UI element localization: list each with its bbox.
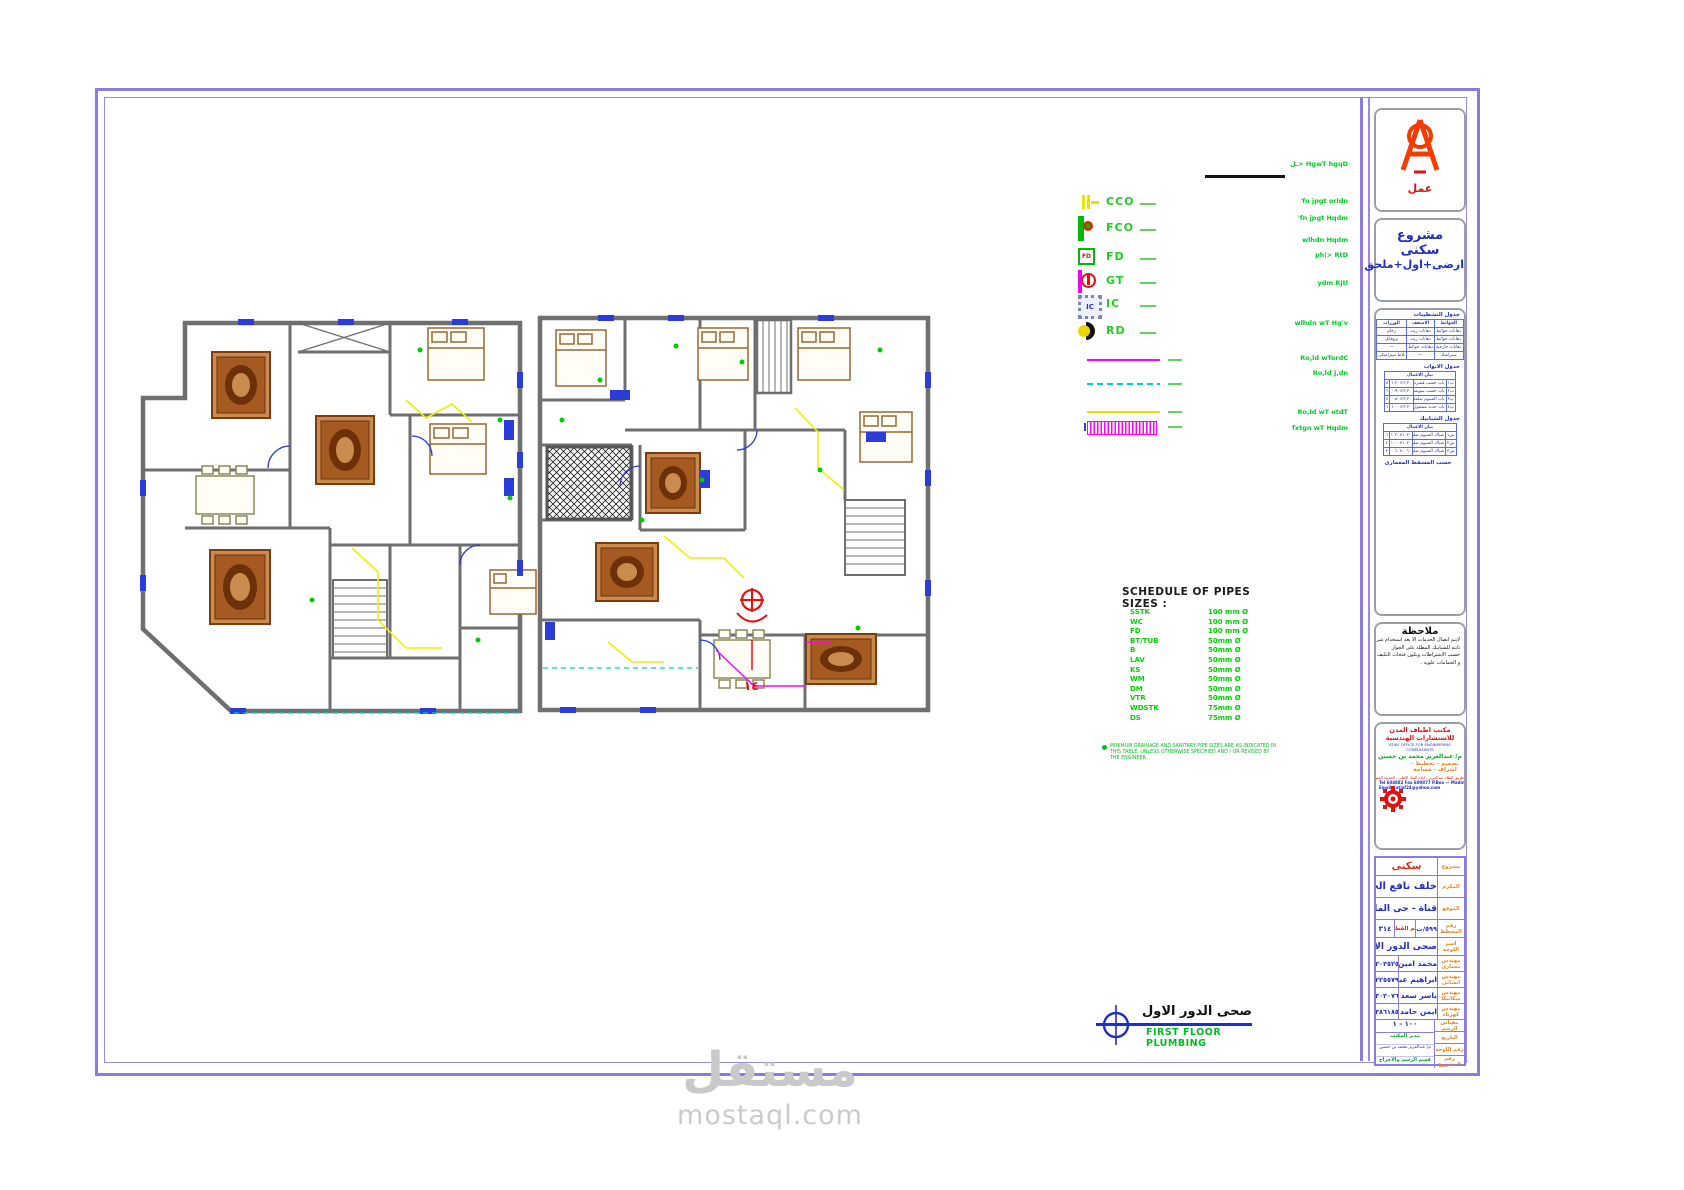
info-value: صحى الدور الاول bbox=[1376, 942, 1437, 952]
line-sample-yellow bbox=[1087, 411, 1160, 413]
watermark-wordmark: مستقل bbox=[660, 1042, 880, 1098]
table-row: ش١شباك المنيوم ضلفتين منزلق١.٢٠×١.٢٠٦ bbox=[1384, 432, 1456, 440]
info-label: الموقع bbox=[1437, 898, 1464, 919]
legend-label: RD bbox=[1106, 324, 1126, 337]
info-label: رقم المشروع bbox=[1435, 1056, 1464, 1067]
engineer-license: ٣٨٦١٨٥ bbox=[1376, 1004, 1399, 1019]
info-label: التاريخ bbox=[1435, 1032, 1464, 1043]
finishes-body: ١بلاط رخامدهانات حوائطدهانات زيترخام٢سير… bbox=[1377, 328, 1467, 360]
table-row: ٢سيراميكدهانات حوائطدهانات زيتبروفايل bbox=[1377, 336, 1467, 344]
pipe-row: WDSTK75mm Ø bbox=[1130, 704, 1260, 714]
legend-label: GT bbox=[1106, 274, 1124, 287]
pipe-schedule-rows: SSTK100 mm ØWC100 mm ØFD100 mm ØBT/TUB50… bbox=[1130, 608, 1260, 723]
info-row-project: مشروع سكنى bbox=[1376, 858, 1464, 876]
note-line: حسب الاشتراطات ويكون فتحات التكيف bbox=[1376, 652, 1464, 660]
legend-tick bbox=[1168, 359, 1182, 361]
legend-label: FCO bbox=[1106, 221, 1134, 234]
info-row-owner: المكرم خلف نافع الحربى bbox=[1376, 876, 1464, 898]
note-title: ملاحظة bbox=[1376, 626, 1464, 637]
info-row-plot: رقم المخطط ٥٩٩/ت /١٤١٣ رقم القطعة ٣١٤ bbox=[1376, 920, 1464, 938]
project-title-line: سكنى bbox=[1376, 243, 1464, 258]
office-engineer: م/ عبدالعزيز محمد بن حسين bbox=[1376, 753, 1464, 760]
info-row-location: الموقع قناة - حى الملك فهد bbox=[1376, 898, 1464, 920]
pipe-schedule-note: MINIMUM DRAINAGE AND SANITARY PIPE SIZES… bbox=[1110, 744, 1280, 762]
legend-annotation: ydm Rjtl bbox=[1318, 279, 1349, 287]
legend-annotation: Ro,ld J,dn bbox=[1313, 369, 1348, 377]
info-label: رقم المخطط bbox=[1437, 920, 1464, 937]
info-label: مشروع bbox=[1437, 858, 1464, 875]
legend-row-ic: IC IC bbox=[1078, 295, 1188, 317]
info-value: خلف نافع الحربى bbox=[1376, 881, 1437, 892]
note-box: ملاحظة لايتم ايصال الخدمات الا بعد استخد… bbox=[1374, 622, 1466, 716]
finishes-head: مالارضياتالحوائطالاسقفالوزرات bbox=[1377, 320, 1467, 328]
plot-sub-value: ٣١٤ bbox=[1376, 925, 1394, 933]
legend-tick bbox=[1140, 258, 1156, 260]
engineer-name: محمد امين الوجيه bbox=[1399, 959, 1437, 968]
plot-sub-label: رقم القطعة bbox=[1394, 920, 1416, 937]
pipe-schedule-title: SCHEDULE OF PIPES SIZES : bbox=[1122, 586, 1282, 610]
legend-annotation: ph|> RtD bbox=[1315, 251, 1348, 259]
legend-annotation: 'fn jpgt Hqdm bbox=[1298, 214, 1348, 222]
watermark-domain: mostaql.com bbox=[660, 1100, 880, 1131]
pipe-row: DS75mm Ø bbox=[1130, 714, 1260, 724]
plan-title-english: FIRST FLOOR PLUMBING bbox=[1146, 1027, 1266, 1049]
info-label: رقم اللوحة bbox=[1435, 1044, 1464, 1055]
table-row: ش٢شباك المنيوم ضلفتين منزلق١.٢٠×١.٠٠٤ bbox=[1384, 440, 1456, 448]
manager-label: مدير المكتب bbox=[1376, 1033, 1434, 1045]
engineer-name: ايمن حامد العوفى bbox=[1399, 1007, 1437, 1016]
schedules-box: جدول التشطيبات مالارضياتالحوائطالاسقفالو… bbox=[1374, 308, 1466, 616]
info-label: مقياس الرسم bbox=[1435, 1020, 1464, 1031]
legend-tick bbox=[1168, 426, 1182, 428]
logo-word: عمل bbox=[1376, 182, 1464, 195]
scale-value: ١٠٠ - ١ bbox=[1376, 1020, 1434, 1033]
legend-annotation: Ro,ld wTordC bbox=[1300, 354, 1348, 362]
line-sample-cyan-dashed bbox=[1087, 383, 1160, 385]
windows-body: ش١شباك المنيوم ضلفتين منزلق١.٢٠×١.٢٠٦ش٢ش… bbox=[1384, 432, 1456, 456]
engineer-license: ٢٢٥٥٧٩ bbox=[1376, 972, 1399, 987]
logo-box: عمل bbox=[1374, 108, 1466, 212]
legend-row-fco: FCO bbox=[1078, 219, 1188, 241]
note-line: و الحمامات علوية . bbox=[1376, 660, 1464, 668]
legend-annotation: ـل> HgwT hgqD bbox=[1290, 160, 1348, 168]
plan-title-arabic: صحى الدور الاول bbox=[1130, 1004, 1252, 1019]
table-row: ب٢باب خشب سويسكى قشرة زان الدهان٢.٢٠×٠.٩… bbox=[1385, 388, 1456, 396]
grease-trap-gt-icon bbox=[1078, 270, 1082, 293]
line-sample-insulated bbox=[1087, 421, 1157, 435]
info-label: المكرم bbox=[1437, 876, 1464, 897]
table-row: ب١باب خشب قشرة ابيض الدهان زيت٢.٢٠×١.٢٠٨ bbox=[1385, 380, 1456, 388]
windows-table: بيان الاعمالش١شباك المنيوم ضلفتين منزلق١… bbox=[1383, 423, 1456, 456]
pipe-row: LAV50mm Ø bbox=[1130, 656, 1260, 666]
manager-name: م/ عبدالعزيز محمد بن حسين bbox=[1376, 1045, 1434, 1057]
windows-table-title: جدول الشبابيك bbox=[1376, 414, 1464, 422]
finishes-table: مالارضياتالحوائطالاسقفالوزرات١بلاط رخامد… bbox=[1376, 319, 1466, 360]
legend-annotation: wlhdn wT Hg'v bbox=[1295, 319, 1348, 327]
inspection-chamber-ic-icon: IC bbox=[1078, 295, 1102, 319]
legend-row-cco: CCO bbox=[1078, 193, 1188, 215]
table-row: ب٤باب حديد مشغول٢.٢٠×١.٠٠١ bbox=[1385, 404, 1456, 412]
office-name-english: ATIAF OFFICE FOR ENGINEERING CONSULTANTS bbox=[1376, 742, 1464, 752]
table-row: ب٣باب المنيوم ضلفة مع زجاج٢.٢٠×٠.٨٠٤ bbox=[1385, 396, 1456, 404]
info-row-sheet-name: اسم اللوحة صحى الدور الاول bbox=[1376, 938, 1464, 956]
cleanout-cco-icon bbox=[1082, 193, 1102, 211]
pipe-row: WM50mm Ø bbox=[1130, 675, 1260, 685]
plan-title-underline bbox=[1096, 1023, 1252, 1026]
table-row: ٣بلاط حجرىدهانات خارجيةدهانات حوائط— bbox=[1377, 344, 1467, 352]
table-row: ٤بلاط متداخلسيراميك—بلاط سيراميكى bbox=[1377, 352, 1467, 360]
windows-footer: حسب المسقط المعمارى bbox=[1376, 458, 1464, 466]
note-line: لايتم ايصال الخدمات الا بعد استخدام شرائ… bbox=[1376, 637, 1464, 645]
office-box: مكتب اطياف المدن للاستشارات الهندسية ATI… bbox=[1374, 722, 1466, 850]
engineer-license: ٣٠٢٠٧٦ bbox=[1376, 988, 1399, 1003]
info-label: مهندس انشائى bbox=[1437, 972, 1464, 987]
info-bottom-grid: مقياس الرسم التاريخ رقم اللوحة رقم المشر… bbox=[1376, 1020, 1464, 1068]
legend-annotation: wlhdn Hqdm bbox=[1302, 236, 1348, 244]
floor-drain-fd-icon: FD bbox=[1078, 248, 1095, 265]
project-title-line: مشروع bbox=[1376, 228, 1464, 243]
finishes-table-title: جدول التشطيبات bbox=[1376, 310, 1464, 318]
legend-row-rd: RD bbox=[1078, 322, 1188, 344]
engineer-name: ياسر سعد الجعفى bbox=[1399, 991, 1437, 1000]
legend-row-gt: GT bbox=[1078, 272, 1188, 294]
legend-label: IC bbox=[1106, 297, 1120, 310]
info-row-engineer: مهندس معمارى محمد امين الوجيه ٢٠٣٥٢٥ bbox=[1376, 956, 1464, 972]
legend-annotation: Ro,ld wT otdT bbox=[1298, 408, 1348, 416]
plot-number: ٥٩٩/ت /١٤١٣ bbox=[1416, 925, 1437, 933]
info-label: مهندس ميكانيكا bbox=[1437, 988, 1464, 1003]
bullet-icon bbox=[1102, 745, 1107, 750]
legend-tick bbox=[1140, 332, 1156, 334]
table-row: ش٣شباك المنيوم ضلفة منزلق٠.٦٠×٠.٦٠٣ bbox=[1384, 448, 1456, 456]
legend-tick bbox=[1140, 229, 1156, 231]
engineer-name: ابراهيم عبد العال bbox=[1399, 975, 1437, 984]
legend-label: CCO bbox=[1106, 195, 1135, 208]
legend-annotations: ـل> HgwT hgqD'fn jpgt orldn'fn jpgt Hqdm… bbox=[1238, 0, 1348, 450]
titleblock-separator-inner bbox=[1368, 97, 1370, 1061]
info-row-engineer: مهندس ميكانيكا ياسر سعد الجعفى ٣٠٢٠٧٦ bbox=[1376, 988, 1464, 1004]
titleblock-separator bbox=[1360, 97, 1363, 1061]
legend-label: FD bbox=[1106, 250, 1125, 263]
red-marker-label: ١٤ bbox=[744, 679, 759, 693]
project-title-box: مشروع سكنى ارضى+اول+ملحق bbox=[1374, 218, 1466, 302]
legend-annotation: 'fn jpgt orldn bbox=[1300, 197, 1348, 205]
windows-header: بيان الاعمال bbox=[1384, 424, 1456, 432]
pipe-row: FD100 mm Ø bbox=[1130, 627, 1260, 637]
info-label: مهندس معمارى bbox=[1437, 956, 1464, 971]
titleblock-info-table: مشروع سكنى المكرم خلف نافع الحربى الموقع… bbox=[1374, 856, 1466, 1066]
info-label: اسم اللوحة bbox=[1437, 938, 1464, 955]
pipe-row: SSTK100 mm Ø bbox=[1130, 608, 1260, 618]
table-row: ١بلاط رخامدهانات حوائطدهانات زيترخام bbox=[1377, 328, 1467, 336]
info-label: مهندس كهرباء bbox=[1437, 1004, 1464, 1019]
pipe-row: DM50mm Ø bbox=[1130, 685, 1260, 695]
legend-tick bbox=[1168, 383, 1182, 385]
info-row-engineer: مهندس انشائى ابراهيم عبد العال ٢٢٥٥٧٩ bbox=[1376, 972, 1464, 988]
doors-header: بيان الاعمال bbox=[1385, 372, 1456, 380]
office-name-arabic: مكتب اطياف المدن للاستشارات الهندسية bbox=[1376, 726, 1464, 742]
engineer-license: ٢٠٣٥٢٥ bbox=[1376, 956, 1399, 971]
dept-label: قسم الرسم والاخراج bbox=[1376, 1057, 1434, 1068]
pipe-note-text: MINIMUM DRAINAGE AND SANITARY PIPE SIZES… bbox=[1110, 744, 1276, 761]
doors-table: بيان الاعمالب١باب خشب قشرة ابيض الدهان ز… bbox=[1384, 371, 1456, 412]
doors-table-title: جدول الابواب bbox=[1376, 362, 1464, 370]
pipe-row: KS50mm Ø bbox=[1130, 666, 1260, 676]
office-gear-logo-icon bbox=[1380, 786, 1406, 812]
pipe-row: BT/TUB50mm Ø bbox=[1130, 637, 1260, 647]
office-logo-icon bbox=[1390, 114, 1450, 180]
floor-plan: ١٤ bbox=[130, 300, 940, 735]
info-value: سكنى bbox=[1376, 861, 1437, 872]
legend-tick bbox=[1140, 305, 1156, 307]
doors-body: ب١باب خشب قشرة ابيض الدهان زيت٢.٢٠×١.٢٠٨… bbox=[1385, 380, 1456, 412]
legend-tick bbox=[1140, 282, 1156, 284]
floor-cleanout-fco-icon bbox=[1078, 216, 1084, 241]
info-value: قناة - حى الملك فهد bbox=[1376, 904, 1437, 914]
info-row-engineer: مهندس كهرباء ايمن حامد العوفى ٣٨٦١٨٥ bbox=[1376, 1004, 1464, 1020]
legend-tick bbox=[1140, 203, 1156, 205]
legend-annotation: fxtgn wT Hqdm bbox=[1292, 424, 1348, 432]
light-well-hatch bbox=[547, 447, 631, 519]
project-title-line: ارضى+اول+ملحق bbox=[1376, 258, 1464, 271]
note-line: ثابتة للشبابيك المطلة على الجوار bbox=[1376, 645, 1464, 653]
pipe-row: B50mm Ø bbox=[1130, 646, 1260, 656]
office-services: تصميم - تخطيط - اشراف - مساحة bbox=[1406, 761, 1464, 773]
pipe-row: VTR50mm Ø bbox=[1130, 694, 1260, 704]
legend-row-fd: FD FD bbox=[1078, 248, 1188, 270]
cad-sheet: ١٤ CCO FCO FD FD GT IC IC RD bbox=[0, 0, 1684, 1190]
legend-tick bbox=[1168, 411, 1182, 413]
pipe-row: WC100 mm Ø bbox=[1130, 618, 1260, 628]
line-sample-magenta bbox=[1087, 359, 1160, 361]
